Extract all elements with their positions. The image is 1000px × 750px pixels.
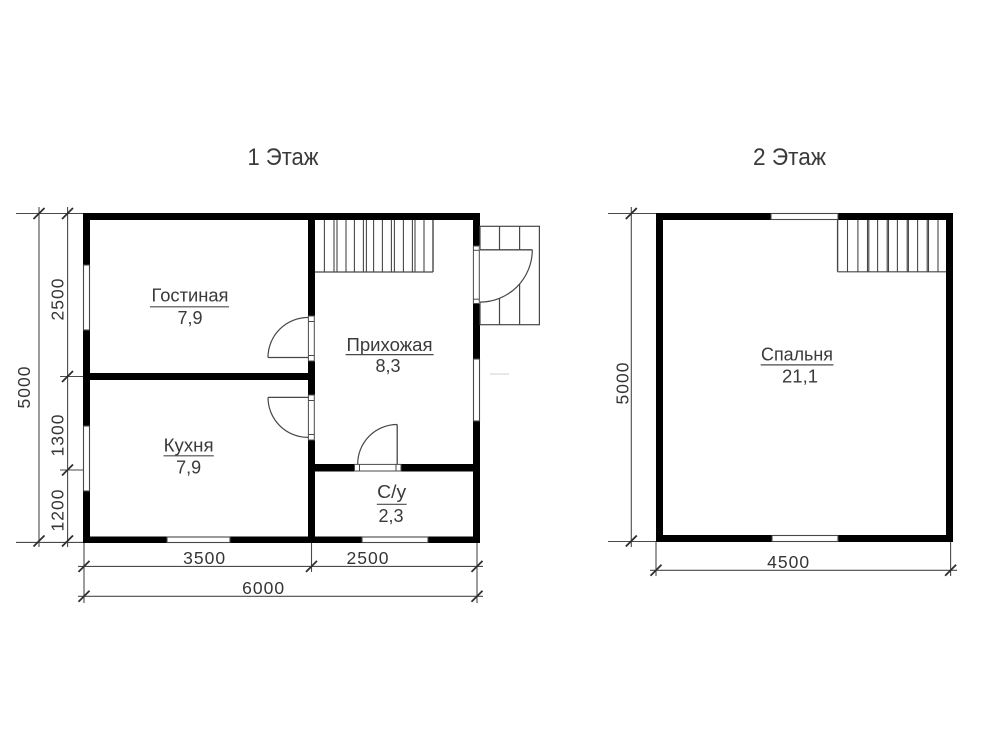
svg-text:2500: 2500	[347, 548, 390, 568]
svg-text:1300: 1300	[48, 414, 68, 457]
svg-text:8,3: 8,3	[375, 356, 400, 376]
svg-text:С/у: С/у	[377, 481, 407, 502]
svg-text:2,3: 2,3	[378, 506, 403, 526]
svg-text:Гостиная: Гостиная	[152, 285, 229, 306]
svg-text:Спальня: Спальня	[761, 344, 833, 365]
svg-text:5000: 5000	[14, 366, 34, 409]
svg-text:21,1: 21,1	[782, 367, 818, 387]
svg-text:7,9: 7,9	[176, 457, 201, 477]
svg-text:Кухня: Кухня	[164, 435, 214, 456]
svg-text:2 Этаж: 2 Этаж	[753, 144, 826, 171]
svg-text:7,9: 7,9	[177, 308, 202, 328]
svg-text:1200: 1200	[48, 489, 68, 532]
svg-text:4500: 4500	[767, 552, 810, 572]
svg-text:2500: 2500	[48, 278, 68, 321]
svg-text:6000: 6000	[242, 578, 285, 598]
svg-text:Прихожая: Прихожая	[347, 334, 433, 355]
svg-text:1 Этаж: 1 Этаж	[248, 144, 319, 171]
svg-text:3500: 3500	[183, 548, 226, 568]
svg-text:5000: 5000	[613, 362, 633, 405]
